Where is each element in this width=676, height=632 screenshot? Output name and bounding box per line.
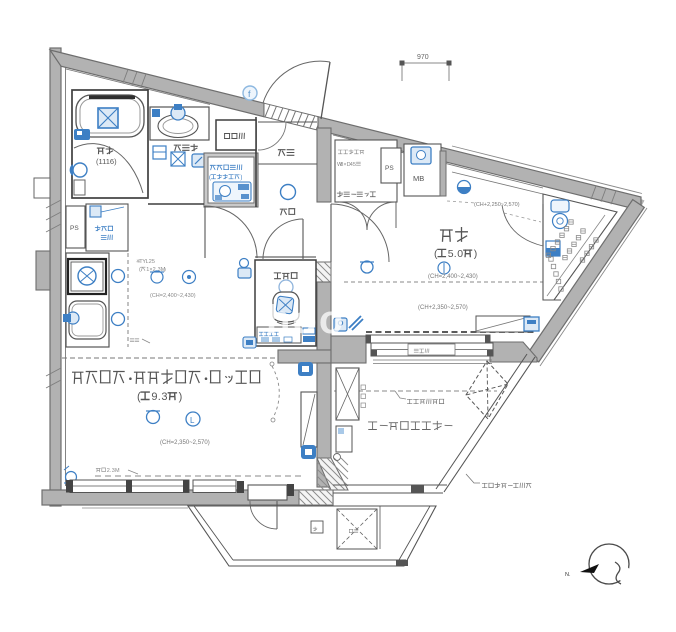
svg-text:hoo: hoo <box>266 298 345 342</box>
svg-text:(CH+2,350~2,570): (CH+2,350~2,570) <box>418 305 468 311</box>
svg-text:.: . <box>454 248 457 260</box>
svg-text:.: . <box>158 391 161 403</box>
svg-text:9: 9 <box>151 391 157 403</box>
svg-text:(CH+2,250~2,570): (CH+2,250~2,570) <box>474 202 520 208</box>
svg-text:N.: N. <box>565 572 571 578</box>
svg-text:(: ( <box>139 267 141 273</box>
svg-text:(: ( <box>209 175 211 181</box>
svg-text:): ) <box>164 267 166 273</box>
svg-text:0: 0 <box>457 248 463 260</box>
svg-text:(CH=2,400~2,430): (CH=2,400~2,430) <box>150 293 196 299</box>
svg-text:L: L <box>190 416 195 425</box>
svg-text:5: 5 <box>353 162 356 168</box>
svg-text:PS: PS <box>70 225 79 232</box>
svg-text:3: 3 <box>161 391 167 403</box>
svg-text:): ) <box>474 248 478 260</box>
svg-text:M: M <box>115 468 120 474</box>
svg-text:5: 5 <box>152 259 155 265</box>
svg-text:): ) <box>240 175 242 181</box>
svg-text:970: 970 <box>417 54 429 61</box>
svg-text:(CH=2,400~2,430): (CH=2,400~2,430) <box>428 274 478 280</box>
svg-text:(1116): (1116) <box>96 157 117 166</box>
svg-text:PS: PS <box>385 165 394 172</box>
svg-text:MB: MB <box>413 174 424 183</box>
svg-text:): ) <box>179 391 183 403</box>
svg-text:(CH=2,350~2,570): (CH=2,350~2,570) <box>160 440 210 446</box>
svg-text:(: ( <box>137 391 141 403</box>
